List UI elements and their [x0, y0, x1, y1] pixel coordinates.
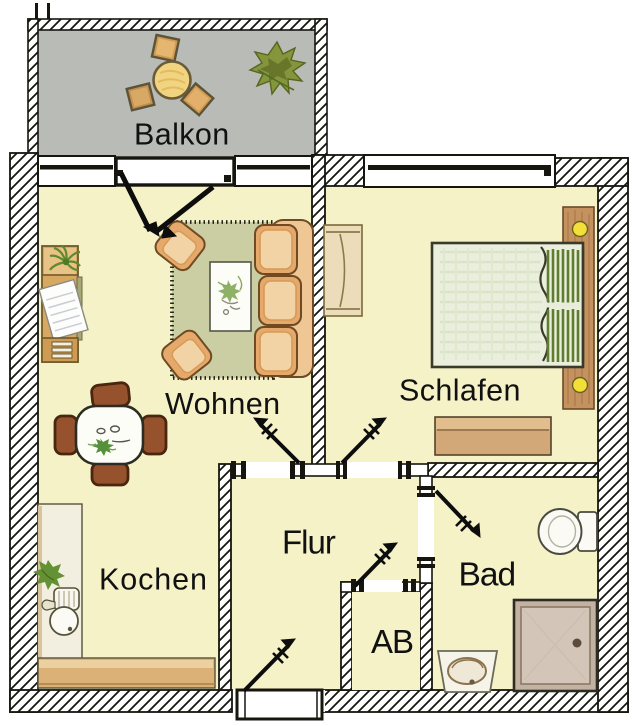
- svg-text:Kochen: Kochen: [99, 563, 208, 597]
- svg-text:Schlafen: Schlafen: [399, 374, 521, 408]
- svg-text:AB: AB: [371, 623, 413, 660]
- svg-text:Bad: Bad: [459, 557, 516, 594]
- svg-text:Balkon: Balkon: [134, 118, 230, 152]
- svg-text:Flur: Flur: [282, 524, 336, 561]
- svg-text:Wohnen: Wohnen: [165, 387, 280, 421]
